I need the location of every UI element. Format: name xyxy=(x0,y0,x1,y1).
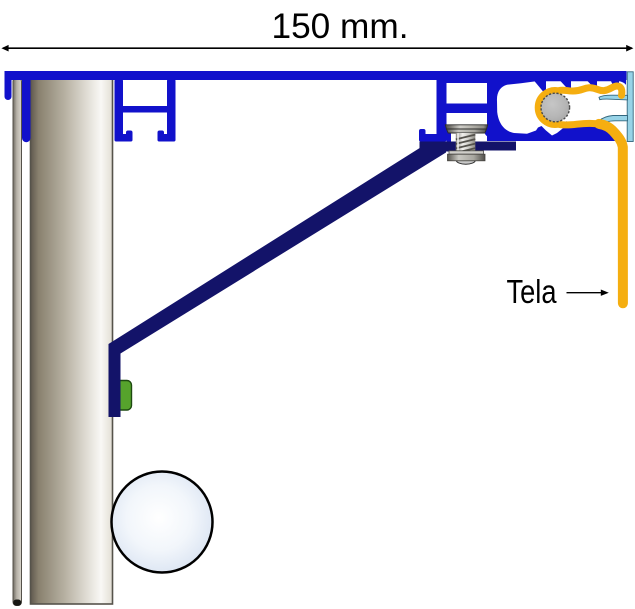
svg-text:Tela: Tela xyxy=(507,273,558,310)
svg-text:150 mm.: 150 mm. xyxy=(272,6,409,46)
